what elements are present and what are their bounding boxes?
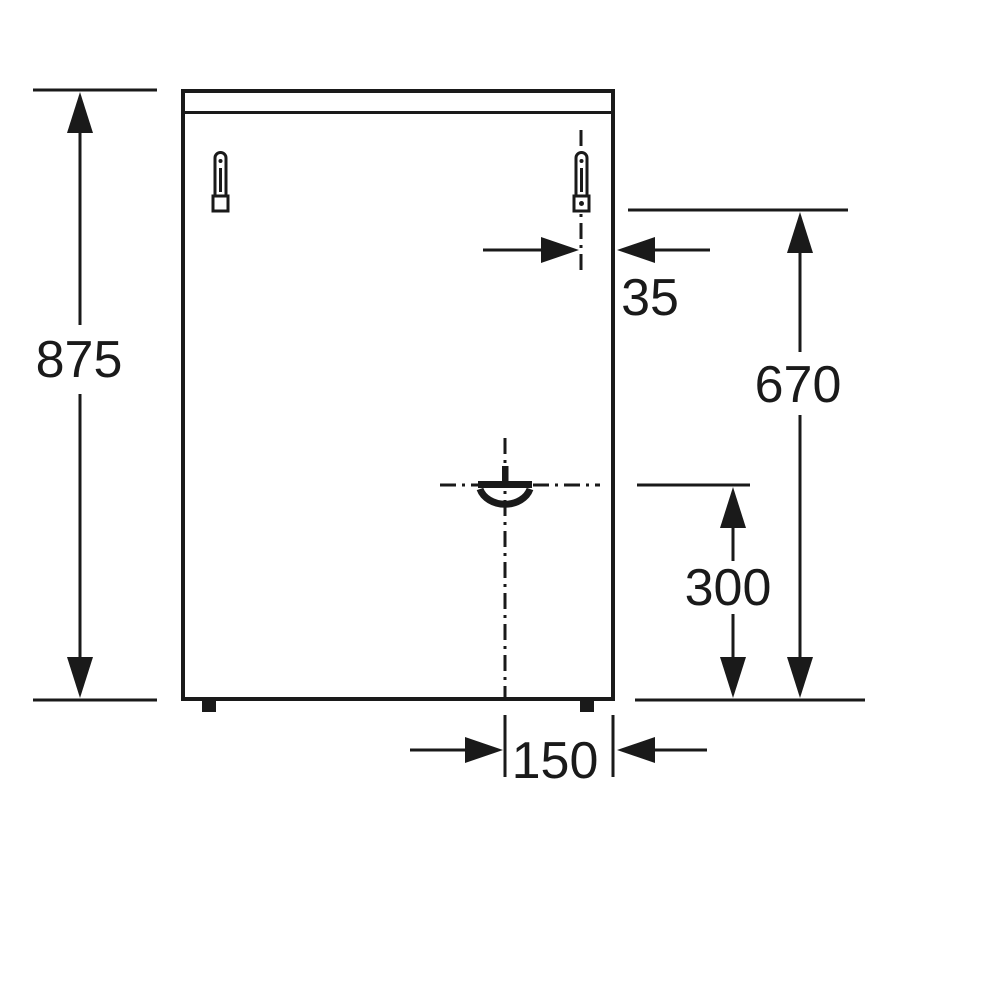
arrow-up-icon <box>67 92 93 133</box>
arrow-down-icon <box>787 657 813 698</box>
dimension-label: 670 <box>755 356 842 414</box>
dimension-gas-offset: 150 <box>410 715 707 790</box>
arrow-up-icon <box>787 212 813 253</box>
right-foot <box>580 699 594 712</box>
installation-diagram-page: 875 35 670 300 <box>0 0 1000 1000</box>
dimension-label: 300 <box>685 559 772 617</box>
gas-symbol-stem <box>502 466 509 483</box>
dimension-gas-height: 300 <box>637 485 771 698</box>
arrow-right-icon <box>465 737 503 763</box>
dimension-overall-height: 875 <box>33 90 157 700</box>
arrow-up-icon <box>720 487 746 528</box>
appliance-body <box>183 91 613 712</box>
dimension-label: 35 <box>621 269 679 327</box>
bracket-screw-dot <box>579 201 584 206</box>
bracket-slot-dot <box>219 159 223 163</box>
arrow-left-icon <box>617 237 655 263</box>
bracket-base <box>213 196 228 211</box>
bracket-slot-dot <box>580 159 584 163</box>
arrow-down-icon <box>67 657 93 698</box>
dimension-label: 150 <box>512 732 599 790</box>
appliance-outline <box>183 91 613 699</box>
installation-diagram: 875 35 670 300 <box>0 0 1000 1000</box>
left-foot <box>202 699 216 712</box>
arrow-down-icon <box>720 657 746 698</box>
left-mounting-bracket <box>213 153 228 212</box>
dimension-label: 875 <box>36 331 123 389</box>
arrow-left-icon <box>617 737 655 763</box>
